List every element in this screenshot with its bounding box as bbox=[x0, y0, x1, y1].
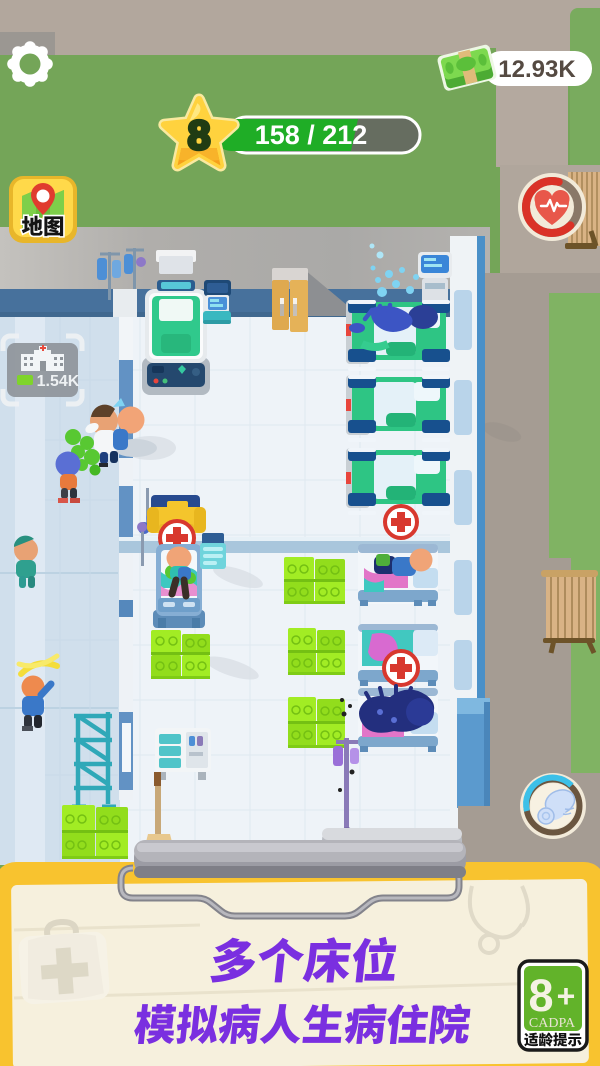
svg-text:1.54K: 1.54K bbox=[37, 373, 80, 390]
svg-text:8: 8 bbox=[188, 112, 211, 158]
svg-text:CADPA: CADPA bbox=[529, 1016, 576, 1031]
svg-text:158 / 212: 158 / 212 bbox=[255, 120, 368, 150]
svg-text:+: + bbox=[557, 978, 576, 1014]
svg-text:8: 8 bbox=[528, 970, 553, 1021]
svg-text:12.93K: 12.93K bbox=[498, 56, 576, 83]
